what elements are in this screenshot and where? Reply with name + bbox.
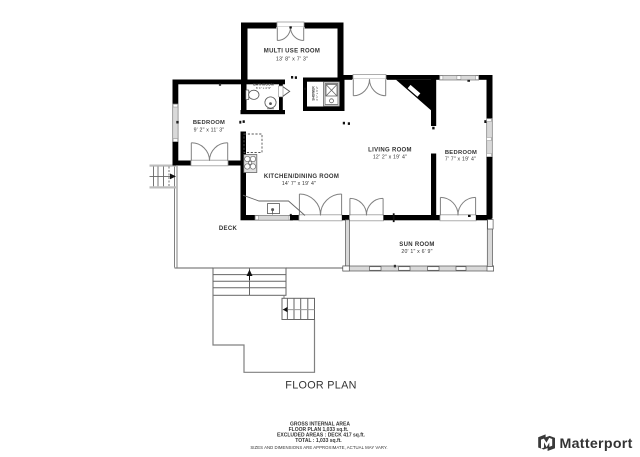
svg-text:SUN ROOM: SUN ROOM <box>399 242 434 248</box>
svg-text:MULTI USE ROOM: MULTI USE ROOM <box>264 49 320 55</box>
svg-text:FLOOR PLAN: FLOOR PLAN <box>285 380 356 392</box>
svg-text:KITCHEN/DINING ROOM: KITCHEN/DINING ROOM <box>264 174 339 180</box>
svg-text:12' 2" x 19' 4": 12' 2" x 19' 4" <box>373 155 407 161</box>
svg-text:7' 7" x 19' 4": 7' 7" x 19' 4" <box>445 157 476 163</box>
svg-text:BEDROOM: BEDROOM <box>445 150 477 156</box>
svg-text:20' 1" x 6' 9": 20' 1" x 6' 9" <box>401 249 432 255</box>
svg-text:SIZES AND DIMENSIONS ARE APPRO: SIZES AND DIMENSIONS ARE APPROXIMATE, AC… <box>250 445 387 450</box>
svg-text:13' 8" x 7' 3": 13' 8" x 7' 3" <box>276 57 308 63</box>
svg-text:TOTAL : 1,033 sq.ft.: TOTAL : 1,033 sq.ft. <box>295 438 342 444</box>
svg-text:BEDROOM: BEDROOM <box>193 120 225 126</box>
svg-text:9' 2" x 11' 3": 9' 2" x 11' 3" <box>194 128 225 134</box>
svg-text:3' 1" x 6' 2": 3' 1" x 6' 2" <box>315 86 319 101</box>
svg-text:LIVING ROOM: LIVING ROOM <box>368 148 412 154</box>
svg-text:Matterport: Matterport <box>560 436 633 452</box>
svg-text:DECK: DECK <box>219 226 238 232</box>
svg-text:6' 1" x 4' 9": 6' 1" x 4' 9" <box>256 86 271 90</box>
svg-text:14' 7" x 19' 4": 14' 7" x 19' 4" <box>282 181 316 187</box>
